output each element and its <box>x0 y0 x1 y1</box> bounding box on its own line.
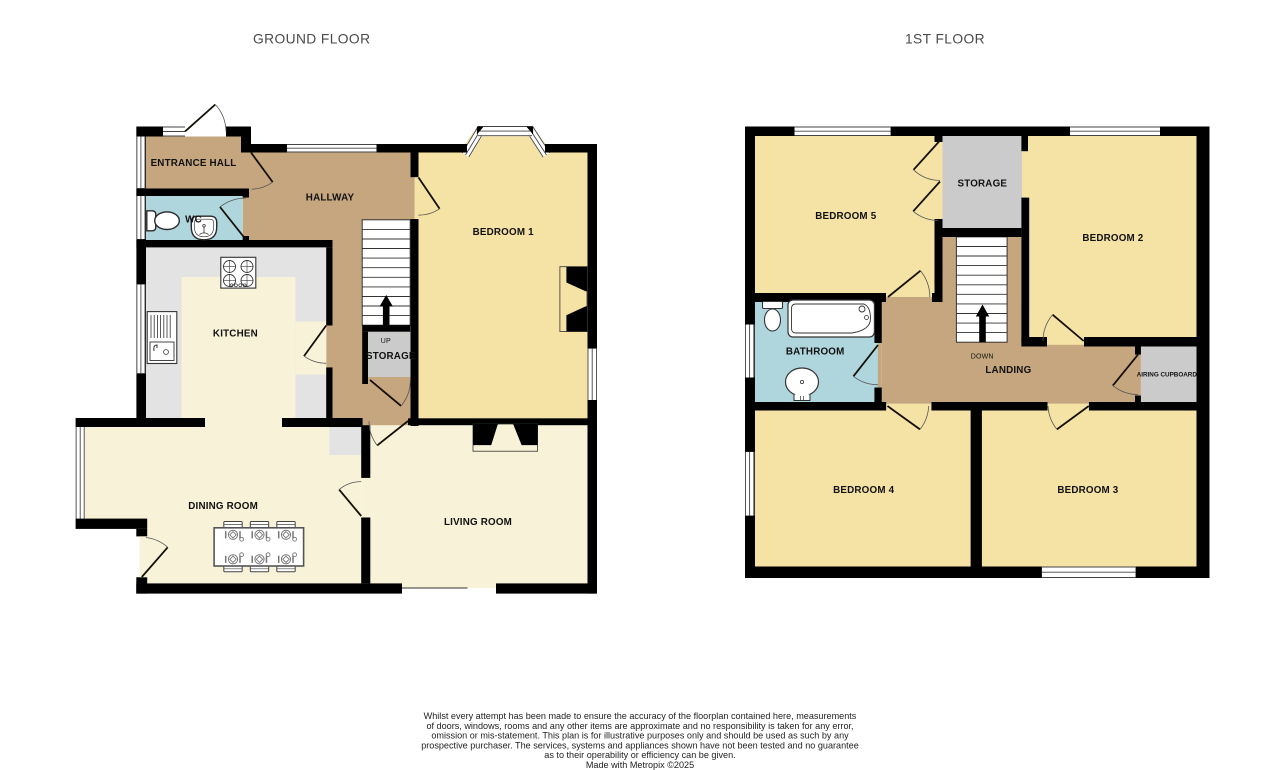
svg-text:BATHROOM: BATHROOM <box>786 346 845 357</box>
svg-text:BEDROOM 1: BEDROOM 1 <box>473 227 534 238</box>
svg-text:of doors, windows, rooms and a: of doors, windows, rooms and any other i… <box>426 721 853 731</box>
svg-text:1ST FLOOR: 1ST FLOOR <box>905 32 985 47</box>
svg-text:BEDROOM 3: BEDROOM 3 <box>1057 485 1118 496</box>
svg-text:ENTRANCE HALL: ENTRANCE HALL <box>151 158 237 169</box>
svg-text:STORAGE: STORAGE <box>957 179 1007 190</box>
svg-text:Made with Metropix ©2025: Made with Metropix ©2025 <box>586 760 694 770</box>
svg-text:BEDROOM 4: BEDROOM 4 <box>833 485 894 496</box>
svg-text:AIRING CUPBOARD: AIRING CUPBOARD <box>1137 371 1198 378</box>
svg-text:UP: UP <box>381 338 391 345</box>
svg-text:KITCHEN: KITCHEN <box>213 329 258 340</box>
svg-text:DOWN: DOWN <box>971 353 994 360</box>
svg-text:GROUND FLOOR: GROUND FLOOR <box>253 32 370 47</box>
svg-text:LIVING ROOM: LIVING ROOM <box>444 517 512 528</box>
svg-text:STORAGE: STORAGE <box>366 351 416 362</box>
svg-text:BEDROOM 2: BEDROOM 2 <box>1082 233 1143 244</box>
svg-text:prospective purchaser. The ser: prospective purchaser. The services, sys… <box>421 740 859 750</box>
svg-text:as to their operability or eff: as to their operability or efficiency ca… <box>544 750 735 760</box>
svg-text:LANDING: LANDING <box>985 365 1031 376</box>
svg-text:Whilst every attempt has been: Whilst every attempt has been made to en… <box>424 711 857 721</box>
svg-text:HALLWAY: HALLWAY <box>306 193 355 204</box>
svg-text:DINING ROOM: DINING ROOM <box>188 501 258 512</box>
svg-text:BEDROOM 5: BEDROOM 5 <box>815 211 876 222</box>
svg-text:omission or mis-statement. Thi: omission or mis-statement. This plan is … <box>431 731 849 741</box>
svg-text:WC: WC <box>185 214 202 225</box>
